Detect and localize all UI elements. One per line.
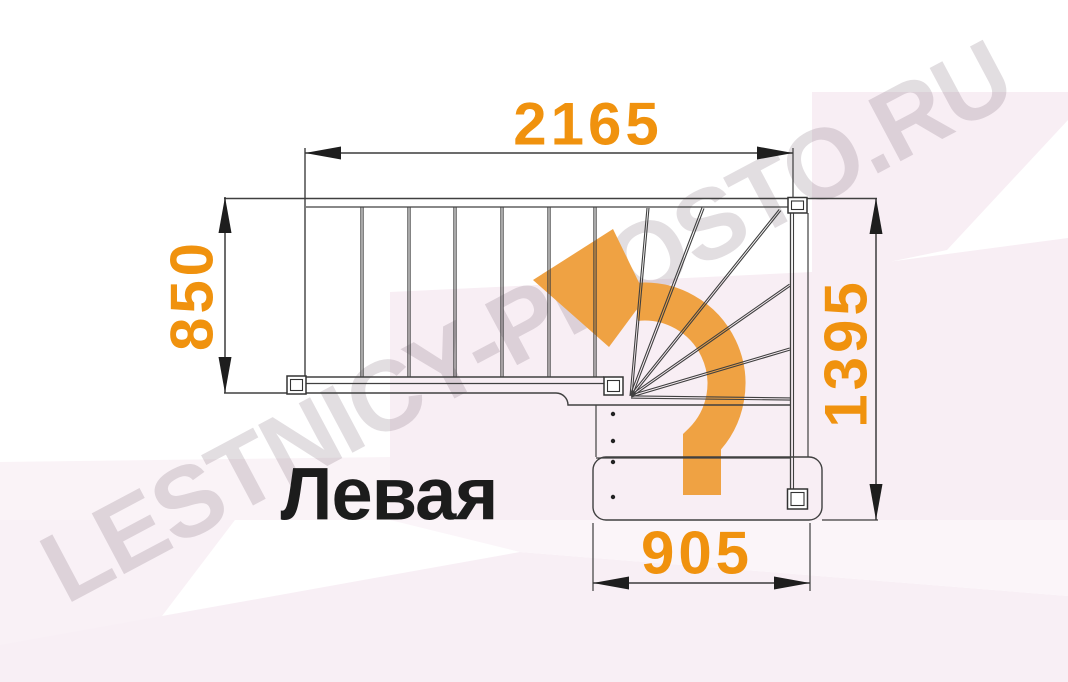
dimension-bottom-value: 905: [641, 519, 753, 588]
dimension-top-value: 2165: [513, 90, 662, 159]
plan-title: Левая: [281, 452, 498, 537]
tread-marker-dots: [611, 412, 615, 499]
newel-post-bottom-right: [788, 489, 808, 509]
newel-post-top-right: [788, 198, 807, 214]
newel-post-center: [604, 377, 623, 395]
turn-direction-arrow: [533, 229, 726, 495]
staircase-plan-page: LESTNICY-PROSTO.RU: [0, 0, 1068, 682]
newel-post-left: [287, 376, 306, 394]
dimension-left-value: 850: [158, 239, 227, 351]
dimension-right-value: 1395: [812, 278, 881, 427]
